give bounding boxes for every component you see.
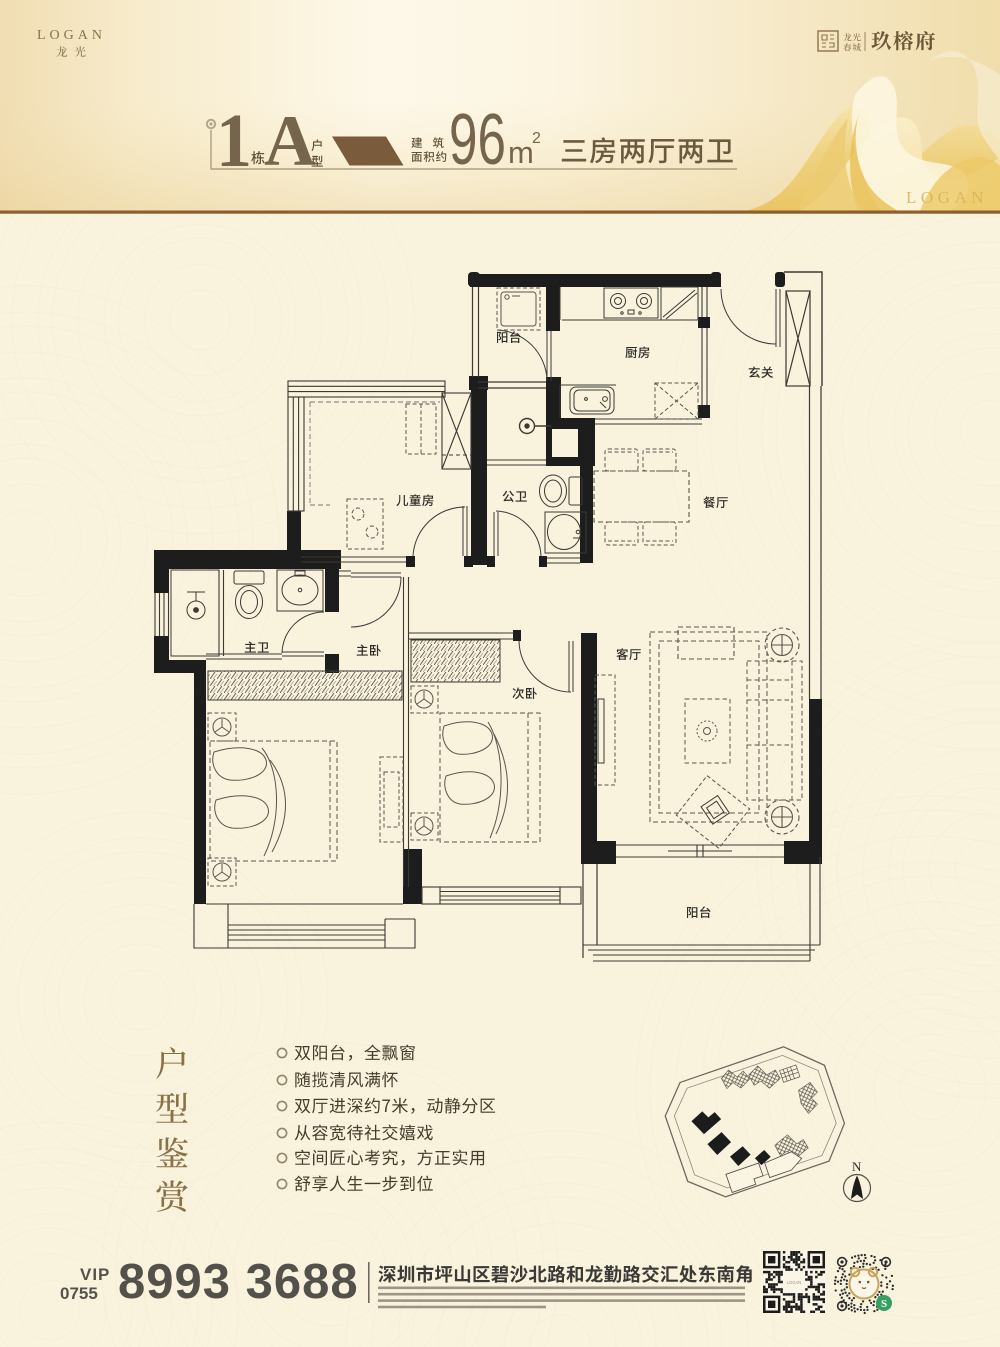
svg-text:8993 3688: 8993 3688 [118,1255,359,1309]
svg-text:LOGAN: LOGAN [787,1280,802,1285]
svg-text:1: 1 [216,99,252,183]
svg-text:0755: 0755 [60,1284,98,1303]
svg-text:N: N [852,1159,862,1174]
svg-text:LOGAN: LOGAN [906,188,988,207]
svg-text:LOGAN: LOGAN [37,28,106,43]
svg-text:96: 96 [449,100,506,180]
svg-text:VIP: VIP [80,1265,110,1284]
svg-text:S: S [881,1298,887,1310]
svg-text:m: m [508,135,534,170]
svg-text:A: A [264,101,316,181]
svg-text:2: 2 [532,130,541,147]
